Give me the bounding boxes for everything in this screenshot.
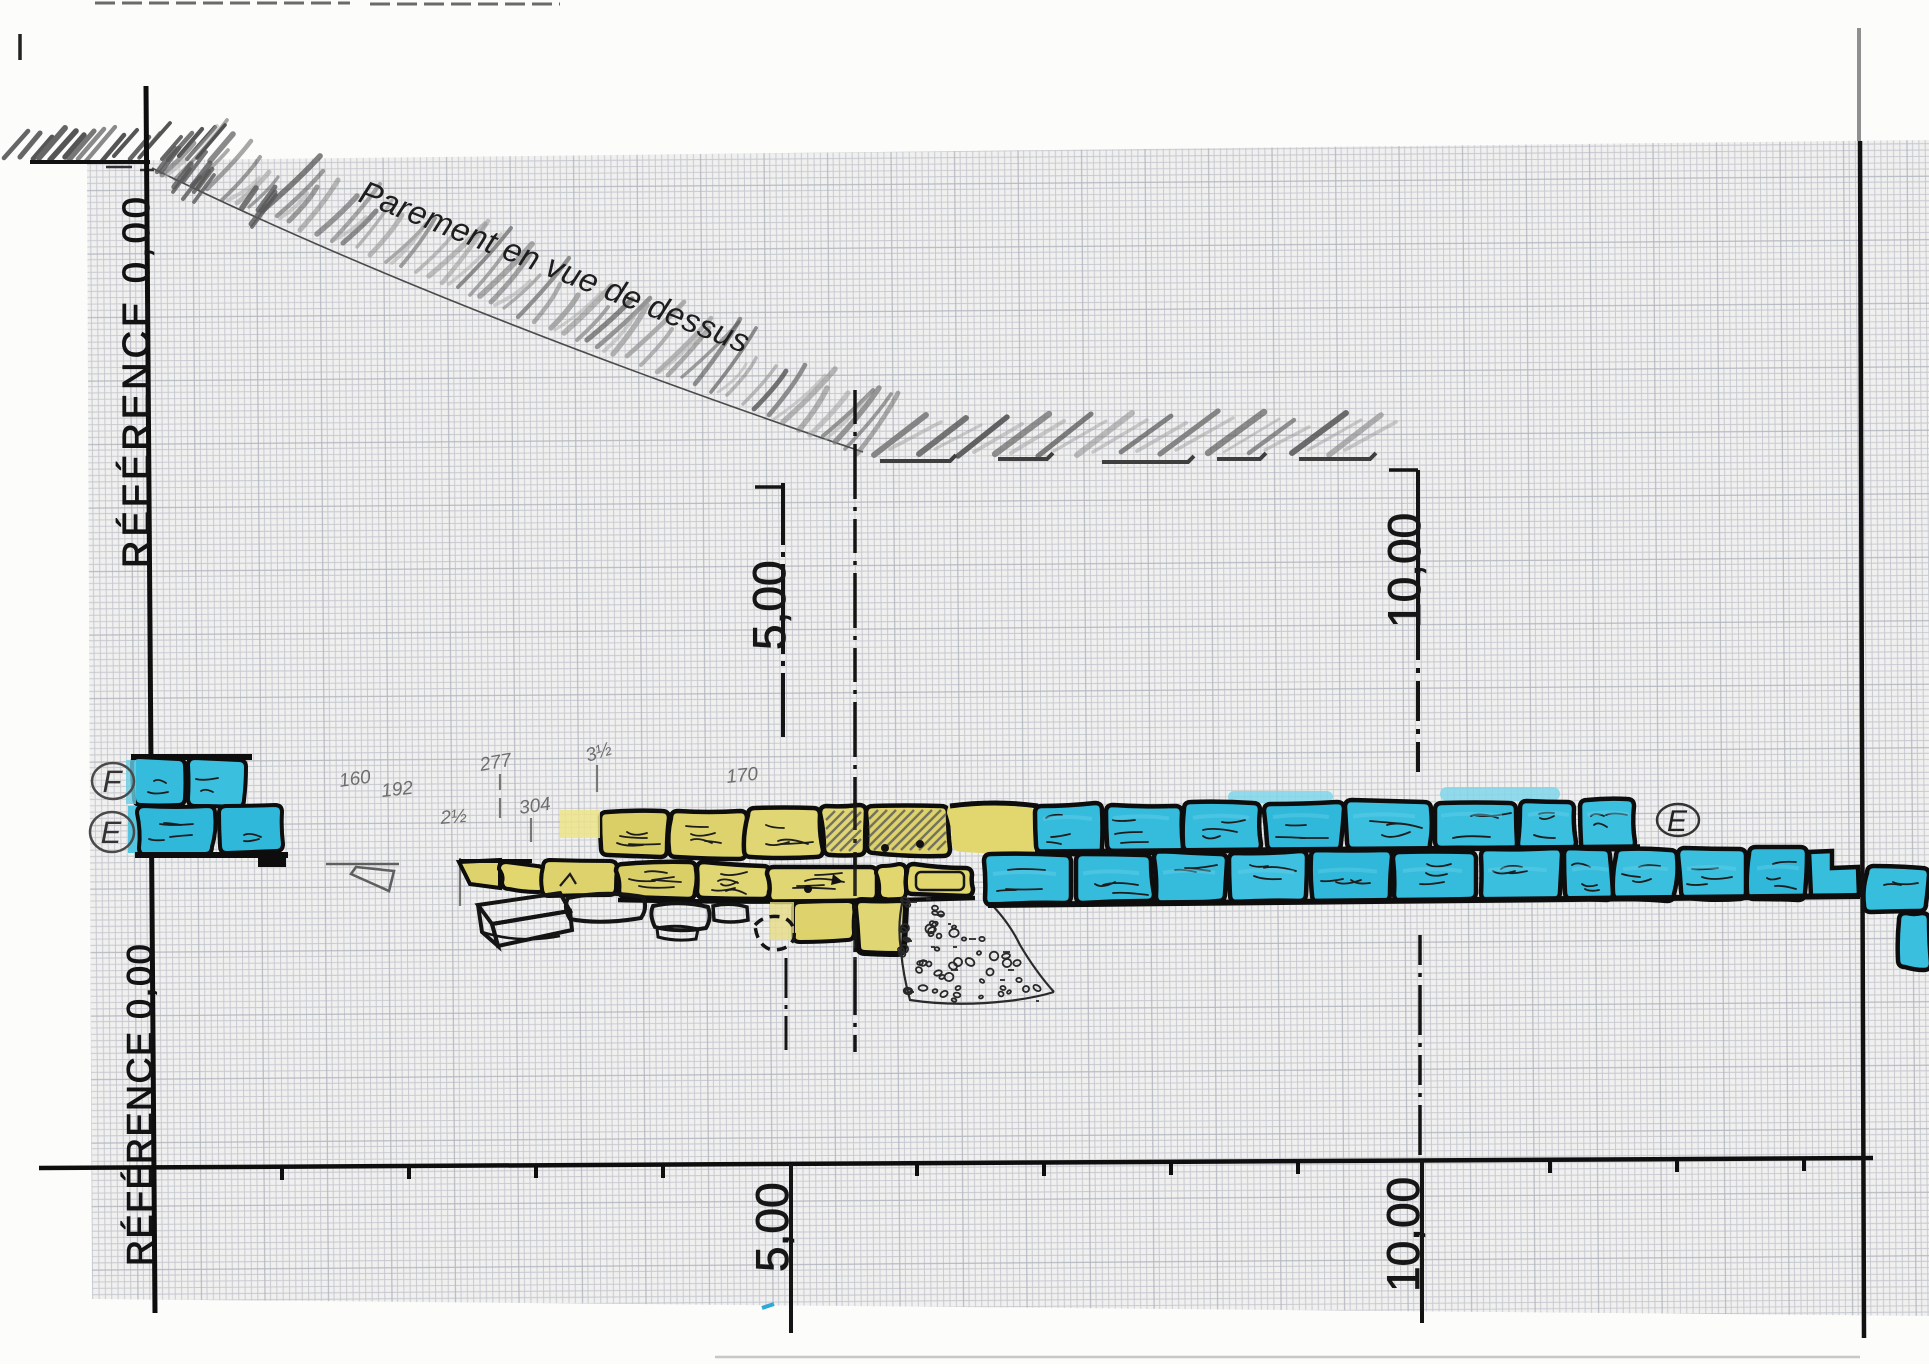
svg-text:E: E [101,815,122,850]
svg-text:5,00: 5,00 [743,560,795,650]
svg-text:RÉFÉRENCE 0,00: RÉFÉRENCE 0,00 [119,943,160,1266]
svg-text:F: F [103,764,124,799]
svg-text:RÉFÉRENCE 0,00: RÉFÉRENCE 0,00 [116,193,158,568]
svg-text:160: 160 [338,767,373,792]
svg-text:2½: 2½ [439,806,468,829]
svg-text:10,00: 10,00 [1378,513,1430,628]
svg-text:10,00: 10,00 [1377,1177,1429,1292]
svg-text:5,00: 5,00 [746,1182,798,1272]
svg-text:192: 192 [380,778,414,802]
svg-text:304: 304 [518,794,552,819]
svg-text:E: E [1667,805,1688,838]
svg-text:170: 170 [725,764,759,788]
